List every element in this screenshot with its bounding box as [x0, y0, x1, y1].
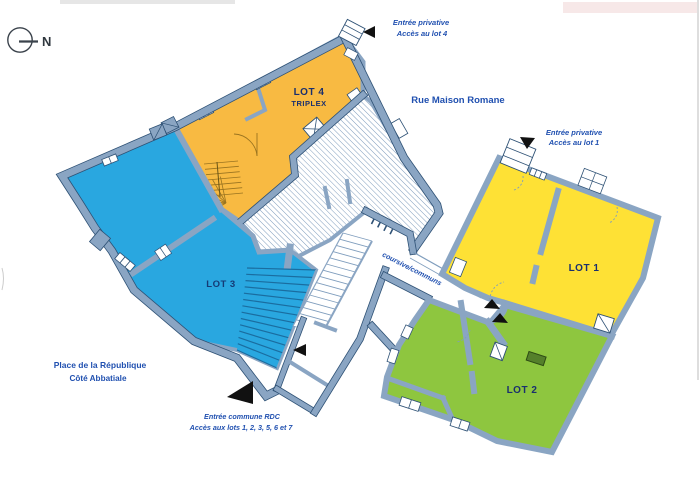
svg-text:LOT 3: LOT 3: [206, 279, 235, 290]
svg-text:Place de la République: Place de la République: [54, 360, 147, 370]
svg-text:LOT 4: LOT 4: [294, 87, 325, 98]
svg-text:Côté Abbatiale: Côté Abbatiale: [69, 374, 126, 383]
svg-text:Entrée commune RDC: Entrée commune RDC: [204, 412, 281, 421]
svg-text:LOT 1: LOT 1: [569, 263, 600, 274]
svg-text:LOT 2: LOT 2: [507, 385, 538, 396]
svg-text:Entrée privative: Entrée privative: [393, 18, 449, 27]
svg-text:Accès aux lots 1, 2, 3, 5, 6 e: Accès aux lots 1, 2, 3, 5, 6 et 7: [189, 423, 294, 432]
svg-text:Entrée privative: Entrée privative: [546, 128, 602, 137]
svg-text:Rue Maison Romane: Rue Maison Romane: [411, 95, 504, 106]
svg-text:N: N: [42, 34, 51, 49]
svg-text:TRIPLEX: TRIPLEX: [291, 99, 326, 108]
svg-text:Accès au lot 4: Accès au lot 4: [396, 29, 448, 38]
svg-text:Accès au lot 1: Accès au lot 1: [548, 138, 599, 147]
